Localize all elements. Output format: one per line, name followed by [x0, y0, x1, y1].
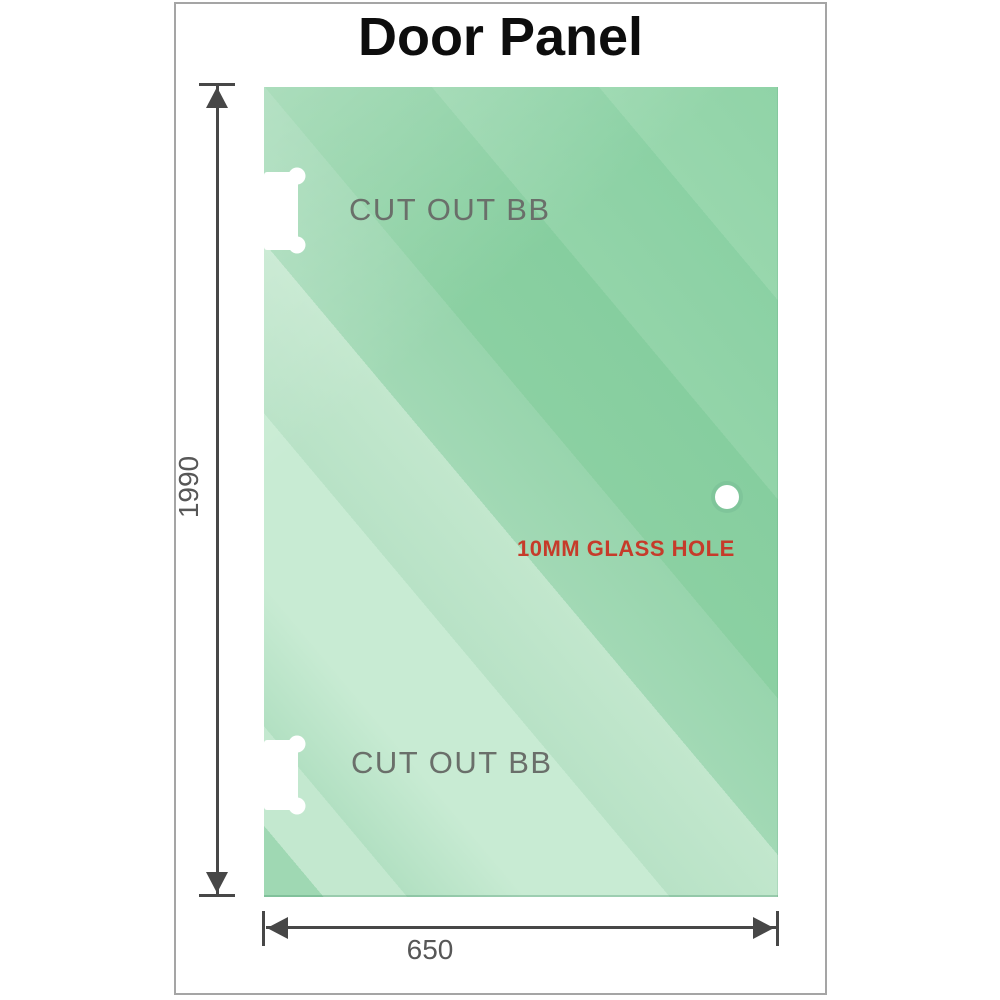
hinge-cutout-bottom [264, 732, 308, 826]
cutout-label-top: CUT OUT BB [349, 192, 551, 228]
width-dim-left-tick [262, 911, 265, 946]
height-dim-label: 1990 [173, 437, 203, 537]
width-dim-right-tick [776, 911, 779, 946]
glass-hole [715, 485, 739, 509]
page-title: Door Panel [174, 6, 827, 68]
glass-hole-label: 10MM GLASS HOLE [517, 536, 735, 562]
width-dim-arrow-right-icon [753, 917, 774, 939]
hinge-cutout-top [264, 164, 308, 258]
height-dim-bottom-cap [199, 894, 235, 897]
cutout-label-bottom: CUT OUT BB [351, 745, 553, 781]
diagram-page: Door Panel CUT OUT BB CUT OUT BB 10MM GL… [0, 0, 1000, 1000]
height-dim-arrow-down-icon [206, 872, 228, 893]
width-dim-label: 650 [380, 934, 480, 966]
width-dim-line [266, 926, 776, 929]
height-dim-line [216, 86, 219, 896]
